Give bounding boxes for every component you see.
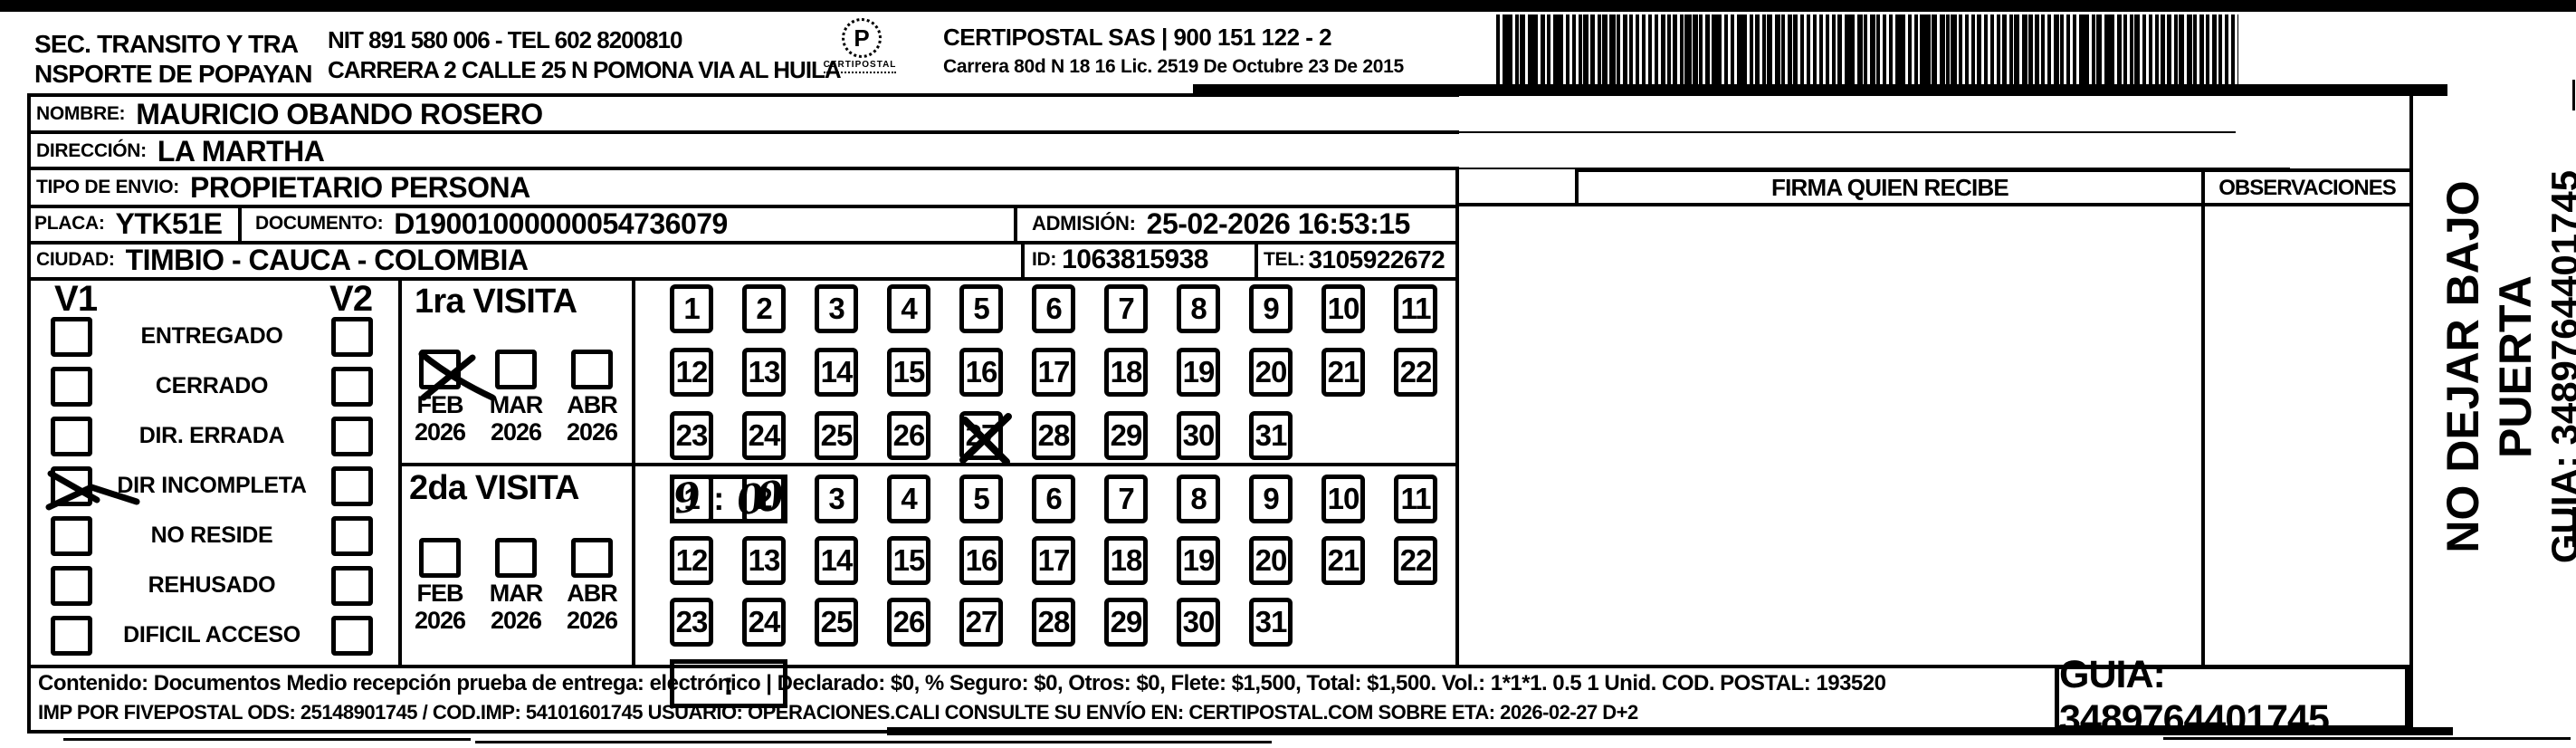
v2-checkbox-5[interactable] [331,566,373,606]
day-number: 16 [966,543,997,578]
scanned-delivery-form: SEC. TRANSITO Y TRA NSPORTE DE POPAYAN N… [0,0,2576,748]
day-number: 25 [821,605,853,639]
placa-value: YTK51E [116,207,223,241]
day-number: 21 [1328,355,1360,389]
v1-checkbox-6[interactable] [51,616,92,656]
day-17-visit2[interactable]: 17 [1032,536,1075,585]
day-number: 13 [749,355,780,389]
day-number: 8 [1190,292,1206,326]
day-14-visit1[interactable]: 14 [815,348,858,397]
tel-label: TEL: [1264,249,1304,271]
direccion-value: LA MARTHA [157,135,325,168]
form-border [27,93,31,734]
day-number: 29 [1111,605,1142,639]
day-9-visit2[interactable]: 9 [1249,475,1293,523]
day-number: 26 [893,418,925,453]
admision-value: 25-02-2026 16:53:15 [1147,207,1410,241]
month-checkbox-1-2[interactable] [571,350,613,389]
logo-caption: CERTIPOSTAL [811,60,909,73]
status-option-label: NO RESIDE [92,523,331,549]
day-number: 21 [1328,543,1360,578]
field-documento: DOCUMENTO: D19001000000054736079 [255,206,728,241]
handwritten-check-mark [44,465,146,516]
v2-checkbox-6[interactable] [331,616,373,656]
day-10-visit2[interactable]: 10 [1321,475,1365,523]
day-number: 20 [1255,355,1287,389]
month-year-label: 2026 [415,607,465,634]
header-band-border [1457,203,2413,206]
month-ABR-visit2: ABR 2026 [559,538,625,634]
day-number: 25 [821,418,853,453]
status-option-label: CERRADO [92,373,331,399]
sender-name-line2: NSPORTE DE POPAYAN [34,59,333,89]
month-label: ABR [567,580,617,607]
months-visit-2: FEB 2026 MAR 2026 ABR 2026 [407,538,628,634]
day-28-visit1[interactable]: 28 [1032,411,1075,460]
day-9-visit1[interactable]: 9 [1249,284,1293,333]
row-divider [27,277,1459,281]
cell-divider [1255,243,1258,279]
observaciones-header: OBSERVACIONES [2205,176,2409,201]
day-number: 3 [828,482,844,516]
status-option-label: REHUSADO [92,572,331,599]
month-label: ABR [567,391,617,418]
day-14-visit2[interactable]: 14 [815,536,858,585]
panel-divider [398,279,402,666]
v2-checkbox-4[interactable] [331,516,373,556]
no-dejar-bajo-puerta-note: NO DEJAR BAJO PUERTA [2437,86,2542,647]
sender-name: SEC. TRANSITO Y TRA NSPORTE DE POPAYAN [34,29,333,89]
day-21-visit1[interactable]: 21 [1321,348,1365,397]
month-MAR-visit2: MAR 2026 [483,538,549,634]
panel-divider [1455,168,1459,666]
v2-checkbox-1[interactable] [331,367,373,407]
day-11-visit1[interactable]: 11 [1394,284,1437,333]
day-number: 30 [1183,418,1215,453]
day-25-visit1[interactable]: 25 [815,411,858,460]
day-2-visit1[interactable]: 2 [742,284,786,333]
day-4-visit2[interactable]: 4 [887,475,930,523]
v1-checkbox-0[interactable] [51,317,92,357]
status-options: ENTREGADO CERRADO DIR. ERRADA DIR INCOMP… [51,312,373,660]
v1-checkbox-1[interactable] [51,367,92,407]
firma-header: FIRMA QUIEN RECIBE [1579,174,2201,202]
certipostal-logo-icon: P [842,18,882,58]
day-number: 11 [1401,482,1431,516]
form-border [2409,93,2413,734]
month-FEB-visit1: FEB 2026 [407,350,472,446]
sender-address: CARRERA 2 CALLE 25 N POMONA VIA AL HUILA [328,55,841,85]
day-number: 19 [1183,355,1215,389]
day-31-visit1[interactable]: 31 [1249,411,1293,460]
side-note: NO DEJAR BAJO PUERTA GUIA: 3489764401745 [2437,86,2554,647]
day-27-visit2[interactable]: 27 [959,598,1003,647]
firma-signature-area[interactable] [1463,210,2198,663]
day-18-visit2[interactable]: 18 [1104,536,1148,585]
id-label: ID: [1032,249,1056,271]
day-number: 10 [1328,482,1360,516]
v2-checkbox-0[interactable] [331,317,373,357]
logo-letter: P [854,24,869,53]
day-number: 11 [1401,292,1431,326]
day-13-visit1[interactable]: 13 [742,348,786,397]
day-number: 15 [893,355,925,389]
day-number: 7 [1118,482,1133,516]
day-29-visit2[interactable]: 29 [1104,598,1148,647]
visit2-title: 2da VISITA [409,469,579,508]
day-number: 12 [676,355,708,389]
status-option-row: CERRADO [51,361,373,411]
month-checkbox-1-1[interactable] [495,350,537,389]
day-number: 4 [901,482,916,516]
day-number: 16 [966,355,997,389]
tipo-envio-value: PROPIETARIO PERSONA [190,171,530,205]
month-checkbox-2-0[interactable] [419,538,461,578]
field-direccion: DIRECCIÓN: LA MARTHA [36,134,324,168]
status-option-label: ENTREGADO [92,323,331,350]
company-name: CERTIPOSTAL SAS | 900 151 122 - 2 [943,24,1331,52]
status-option-label: DIFICIL ACCESO [92,622,331,648]
day-number: 9 [1263,482,1278,516]
month-label: MAR [490,580,543,607]
day-5-visit1[interactable]: 5 [959,284,1003,333]
day-30-visit2[interactable]: 30 [1177,598,1220,647]
ciudad-label: CIUDAD: [36,249,115,271]
month-year-label: 2026 [491,607,541,634]
day-8-visit2[interactable]: 8 [1177,475,1220,523]
day-27-visit1[interactable]: 27 [959,411,1003,460]
documento-value: D19001000000054736079 [394,207,728,241]
day-number: 7 [1118,292,1133,326]
day-1-visit2[interactable]: 1 [670,475,713,523]
day-28-visit2[interactable]: 28 [1032,598,1075,647]
day-29-visit1[interactable]: 29 [1104,411,1148,460]
day-6-visit2[interactable]: 6 [1032,475,1075,523]
v1-checkbox-3[interactable] [51,466,92,506]
day-21-visit2[interactable]: 21 [1321,536,1365,585]
placa-label: PLACA: [34,213,105,235]
day-number: 26 [893,605,925,639]
field-nombre: NOMBRE: MAURICIO OBANDO ROSERO [36,97,543,131]
logo-caption-underline [824,72,896,73]
day-number: 28 [1038,605,1070,639]
day-number: 18 [1111,543,1142,578]
day-31-visit2[interactable]: 31 [1249,598,1293,647]
month-year-label: 2026 [491,418,541,446]
day-number: 18 [1111,355,1142,389]
day-number: 17 [1038,355,1070,389]
sender-nit-tel: NIT 891 580 006 - TEL 602 8200810 [328,25,841,55]
day-number: 1 [683,292,699,326]
day-22-visit1[interactable]: 22 [1394,348,1437,397]
month-year-label: 2026 [567,607,617,634]
day-number: 3 [828,292,844,326]
day-number: 2 [756,292,771,326]
day-5-visit2[interactable]: 5 [959,475,1003,523]
day-8-visit1[interactable]: 8 [1177,284,1220,333]
day-number: 12 [676,543,708,578]
company-address: Carrera 80d N 18 16 Lic. 2519 De Octubre… [943,56,1404,78]
day-number: 22 [1400,355,1432,389]
day-number: 6 [1045,292,1061,326]
day-30-visit1[interactable]: 30 [1177,411,1220,460]
status-option-row: DIR. ERRADA [51,411,373,461]
day-19-visit1[interactable]: 19 [1177,348,1220,397]
status-option-label: DIR. ERRADA [92,423,331,449]
field-admision: ADMISIÓN: 25-02-2026 16:53:15 [1032,206,1410,241]
footer-content-line: Contenido: Documentos Medio recepción pr… [38,671,1885,696]
documento-label: DOCUMENTO: [255,213,383,235]
nombre-label: NOMBRE: [36,103,125,125]
observaciones-area[interactable] [2209,210,2406,663]
day-20-visit2[interactable]: 20 [1249,536,1293,585]
ciudad-value: TIMBIO - CAUCA - COLOMBIA [126,244,529,277]
day-number: 9 [1263,292,1278,326]
day-12-visit2[interactable]: 12 [670,536,713,585]
footer-tracking-line: IMP POR FIVEPOSTAL ODS: 25148901745 / CO… [38,701,1638,724]
tipo-envio-label: TIPO DE ENVIO: [36,177,179,198]
field-tipo-envio: TIPO DE ENVIO: PROPIETARIO PERSONA [36,170,530,205]
day-number: 13 [749,543,780,578]
day-number: 6 [1045,482,1061,516]
day-number: 22 [1400,543,1432,578]
day-number: 4 [901,292,916,326]
day-3-visit2[interactable]: 3 [815,475,858,523]
v2-checkbox-3[interactable] [331,466,373,506]
day-26-visit1[interactable]: 26 [887,411,930,460]
day-20-visit1[interactable]: 20 [1249,348,1293,397]
day-number: 27 [966,605,997,639]
day-7-visit2[interactable]: 7 [1104,475,1148,523]
month-FEB-visit2: FEB 2026 [407,538,472,634]
day-number: 15 [893,543,925,578]
header-band-border [1575,168,2413,172]
day-24-visit2[interactable]: 24 [742,598,786,647]
visit1-title: 1ra VISITA [415,283,577,321]
guia-number-box: GUIA: 3489764401745 [2055,665,2409,730]
cell-divider [238,206,242,243]
day-26-visit2[interactable]: 26 [887,598,930,647]
day-number: 31 [1255,605,1287,639]
day-23-visit1[interactable]: 23 [670,411,713,460]
side-guia-number: GUIA: 3489764401745 [2543,86,2576,647]
scan-artifact [63,738,471,741]
field-tel: TEL: 3105922672 [1264,243,1445,277]
day-23-visit2[interactable]: 23 [670,598,713,647]
logo-caption-text: CERTIPOSTAL [811,60,909,70]
day-number: 31 [1255,418,1287,453]
day-22-visit2[interactable]: 22 [1394,536,1437,585]
day-number: 24 [749,418,780,453]
day-10-visit1[interactable]: 10 [1321,284,1365,333]
handwritten-x-mark [415,345,498,410]
month-year-label: 2026 [415,418,465,446]
day-19-visit2[interactable]: 19 [1177,536,1220,585]
day-number: 23 [676,418,708,453]
day-25-visit2[interactable]: 25 [815,598,858,647]
day-number: 2 [756,482,771,516]
scan-artifact [2163,737,2571,740]
v1-checkbox-5[interactable] [51,566,92,606]
day-16-visit2[interactable]: 16 [959,536,1003,585]
day-number: 28 [1038,418,1070,453]
status-option-row: NO RESIDE [51,511,373,561]
cell-divider [1021,243,1025,279]
id-value: 1063815938 [1062,245,1208,275]
month-checkbox-1-0[interactable] [419,350,461,389]
v1-checkbox-4[interactable] [51,516,92,556]
day-number: 5 [973,482,988,516]
day-number: 10 [1328,292,1360,326]
day-16-visit1[interactable]: 16 [959,348,1003,397]
month-checkbox-2-1[interactable] [495,538,537,578]
observaciones-divider [2201,168,2205,666]
scan-artifact [2572,507,2576,547]
day-17-visit1[interactable]: 17 [1032,348,1075,397]
status-option-row: DIR INCOMPLETA [51,461,373,511]
day-number: 24 [749,605,780,639]
v1-checkbox-2[interactable] [51,417,92,456]
scan-artifact [475,741,1272,743]
day-number: 1 [683,482,699,516]
barcode [1496,14,2238,87]
month-ABR-visit1: ABR 2026 [559,350,625,446]
day-24-visit1[interactable]: 24 [742,411,786,460]
month-year-label: 2026 [567,418,617,446]
day-number: 19 [1183,543,1215,578]
day-number: 14 [821,355,853,389]
field-ciudad: CIUDAD: TIMBIO - CAUCA - COLOMBIA [36,243,528,277]
months-visit-1: FEB 2026 MAR 2026 ABR 2026 [407,350,628,446]
day-number: 17 [1038,543,1070,578]
field-placa: PLACA: YTK51E [34,206,222,241]
v2-checkbox-2[interactable] [331,417,373,456]
tel-value: 3105922672 [1308,245,1445,274]
admision-label: ADMISIÓN: [1032,212,1136,235]
month-checkbox-2-2[interactable] [571,538,613,578]
day-1-visit1[interactable]: 1 [670,284,713,333]
thick-border-segment [887,727,2453,735]
sender-contact: NIT 891 580 006 - TEL 602 8200810 CARRER… [328,25,841,85]
day-2-visit2[interactable]: 2 [742,475,786,523]
cell-divider [1014,206,1017,243]
day-12-visit1[interactable]: 12 [670,348,713,397]
day-3-visit1[interactable]: 3 [815,284,858,333]
nombre-value: MAURICIO OBANDO ROSERO [136,98,542,131]
handwritten-x-mark [956,409,1014,469]
day-18-visit1[interactable]: 18 [1104,348,1148,397]
day-number: 29 [1111,418,1142,453]
day-6-visit1[interactable]: 6 [1032,284,1075,333]
scan-edge-bar [0,0,2576,12]
day-number: 23 [676,605,708,639]
scan-artifact [2572,80,2575,110]
day-7-visit1[interactable]: 7 [1104,284,1148,333]
day-number: 14 [821,543,853,578]
field-id: ID: 1063815938 [1032,243,1208,277]
status-option-row: DIFICIL ACCESO [51,610,373,660]
day-15-visit2[interactable]: 15 [887,536,930,585]
day-4-visit1[interactable]: 4 [887,284,930,333]
day-13-visit2[interactable]: 13 [742,536,786,585]
day-number: 20 [1255,543,1287,578]
day-15-visit1[interactable]: 15 [887,348,930,397]
status-option-row: REHUSADO [51,561,373,610]
month-label: FEB [417,580,463,607]
panel-divider [632,279,635,666]
day-number: 30 [1183,605,1215,639]
day-number: 8 [1190,482,1206,516]
status-option-row: ENTREGADO [51,312,373,361]
write-line [1459,131,2236,133]
day-11-visit2[interactable]: 11 [1394,475,1437,523]
direccion-label: DIRECCIÓN: [36,140,147,162]
day-number: 5 [973,292,988,326]
sender-name-line1: SEC. TRANSITO Y TRA [34,29,333,59]
